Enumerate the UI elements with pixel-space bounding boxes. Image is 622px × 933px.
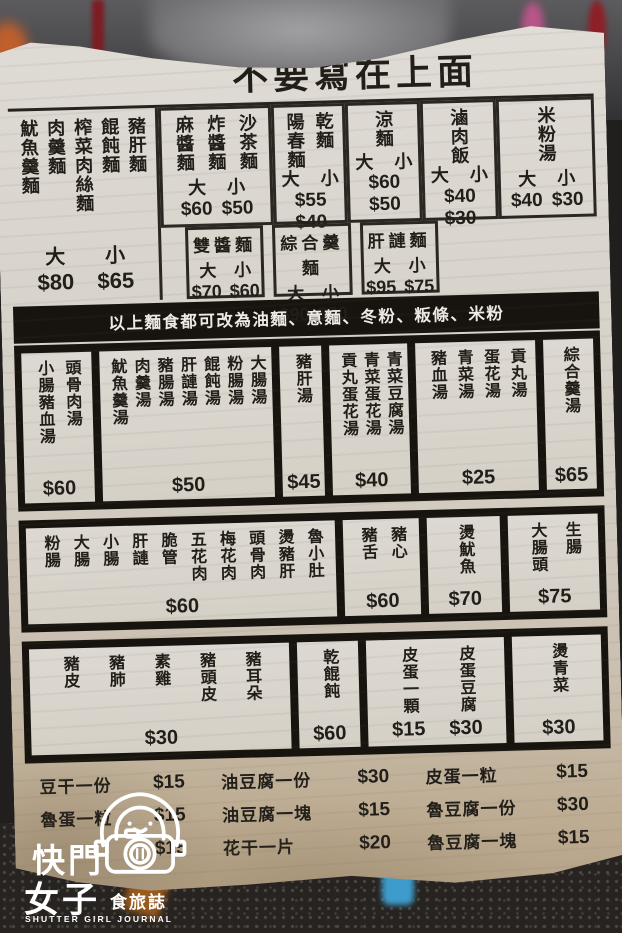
menu-item: 炸醬麵: [205, 114, 226, 178]
menu-item: 粉腸: [40, 535, 58, 599]
noodle-cell-mifen: 米粉湯 大 小 $40 $30: [496, 96, 597, 219]
cold-cell-3: 皮蛋一顆 $15 皮蛋豆腐 $30: [366, 637, 507, 747]
menu-item: 燙魷魚: [455, 524, 473, 588]
price-value: $75: [510, 584, 601, 611]
price-value-large: $80: [37, 269, 74, 295]
noodle-grid: 麻醬麵炸醬麵沙茶麵 大 小 $60 $50 陽春麵乾麵 大 小 $55 $40 …: [158, 96, 599, 299]
menu-item: 青菜豆腐湯: [383, 351, 403, 469]
watermark-line3: 食旅誌: [110, 888, 167, 913]
menu-item: 燙青菜: [548, 642, 567, 716]
price-value: $45: [283, 471, 325, 497]
menu-item: 肝謰: [128, 532, 146, 596]
menu-item: 花干一片: [223, 831, 360, 860]
size-labels: 大 小: [163, 176, 271, 199]
menu-item: 豬皮: [60, 655, 79, 729]
size-labels: 大 小: [363, 251, 436, 278]
price-value: $60: [299, 722, 361, 749]
price-value: $70: [428, 587, 502, 614]
menu-item: 肝謰麵: [363, 226, 436, 253]
noodle-row-1: 麻醬麵炸醬麵沙茶麵 大 小 $60 $50 陽春麵乾麵 大 小 $55 $40 …: [158, 96, 597, 227]
menu-item: 梅花肉: [216, 530, 234, 594]
menu-item: 米粉湯: [535, 105, 556, 169]
cold-section: 豬皮豬肺素雞豬頭皮豬耳朵 $30 乾餛飩 $60 皮蛋一顆 $15 皮蛋豆腐 $…: [22, 626, 611, 763]
price-values: $70 $60: [189, 280, 262, 303]
menu-item: 生腸: [562, 521, 580, 585]
price-values: $60 $50: [163, 197, 271, 225]
size-labels: 大 小: [276, 168, 345, 190]
price-value: $60: [24, 477, 94, 504]
menu-item: 大腸湯: [246, 354, 266, 472]
menu-item: 餛飩湯: [200, 355, 220, 473]
menu-item: 頭骨肉: [245, 529, 263, 593]
price-value: $30: [557, 793, 609, 816]
menu-item: 皮蛋一粒: [425, 760, 556, 788]
price-value: $40: [332, 468, 411, 495]
menu-item: 大腸: [70, 534, 88, 598]
menu-item: 大腸頭: [527, 522, 545, 586]
soup-section: 小腸豬血湯頭骨肉湯 $60 魷魚羹湯肉羹湯豬腸湯肝謰湯餛飩湯粉腸湯大腸湯 $50…: [14, 330, 604, 511]
menu-item: 脆管: [157, 532, 175, 596]
menu-item: 貢丸湯: [507, 347, 527, 465]
price-small: 小 $65: [96, 239, 134, 295]
noodle-cell-double-sauce: 雙醬麵 大 小 $70 $60: [185, 225, 265, 299]
price-value: $30: [514, 715, 603, 742]
menu-item: 涼麵: [373, 110, 393, 152]
noodle-main-items: 魷魚羹麵肉羹麵榨菜肉絲麵餛飩麵豬肝麵: [10, 116, 156, 242]
size-labels: 大 小: [189, 255, 262, 282]
menu-item: 貢丸蛋花湯: [337, 352, 357, 470]
price-value-small: $65: [97, 268, 134, 294]
menu-item: 豬肝麵: [126, 116, 148, 238]
menu-item: 燙豬肝: [274, 529, 292, 593]
menu-item: 皮蛋一顆: [398, 646, 417, 714]
soup-cell-1: 小腸豬血湯頭骨肉湯 $60: [21, 352, 95, 504]
cuts-cell-4: 大腸頭生腸 $75: [508, 513, 600, 611]
noodle-cell-rice: 滷肉飯 大 小 $40 $30: [419, 99, 498, 221]
price-large: 大 $80: [36, 240, 74, 296]
size-labels: 大 小: [424, 164, 495, 187]
menu-item: 魷魚羹麵: [18, 119, 40, 241]
price-value: $25: [418, 465, 538, 493]
menu-item: 頭骨肉湯: [62, 359, 82, 477]
menu-item: 魯豆腐一份: [426, 793, 557, 821]
price-values: $40 $30: [501, 189, 594, 216]
menu-item: 油豆腐一份: [221, 765, 358, 794]
menu-item: 豬血湯: [427, 349, 447, 467]
price-value: $60: [345, 589, 422, 616]
menu-item: 豬心: [387, 526, 405, 590]
noodle-cell-plain: 陽春麵乾麵 大 小 $55 $40: [271, 103, 348, 225]
menu-item: 滷肉飯: [448, 108, 468, 165]
price-values: $60 $50: [350, 171, 419, 219]
soup-cell-2: 魷魚羹湯肉羹湯豬腸湯肝謰湯餛飩湯粉腸湯大腸湯 $50: [99, 347, 276, 501]
menu-item: 青菜蛋花湯: [360, 351, 380, 469]
menu-paper: 不要寫在上面 魷魚羹麵肉羹麵榨菜肉絲麵餛飩麵豬肝麵 大 $80 小 $65: [0, 18, 622, 896]
menu-item: 肝謰湯: [177, 356, 197, 474]
price-value: $15: [558, 826, 610, 849]
cuts-cell-2: 豬舌豬心 $60: [343, 518, 421, 616]
menu-item: 麻醬麵: [174, 115, 195, 179]
price-value: $20: [359, 831, 428, 855]
noodle-cell-sauce: 麻醬麵炸醬麵沙茶麵 大 小 $60 $50: [158, 105, 274, 228]
menu-item: 小腸: [99, 533, 117, 597]
price-value: $65: [546, 464, 597, 490]
menu-item: 五花肉: [187, 531, 205, 595]
noodle-cell-liver: 肝謰麵 大 小 $95 $75: [359, 221, 439, 295]
menu-item: 綜合羹湯: [560, 346, 580, 464]
noodle-cell-main: 魷魚羹麵肉羹麵榨菜肉絲麵餛飩麵豬肝麵 大 $80 小 $65: [8, 108, 163, 304]
soup-cell-4: 貢丸蛋花湯青菜蛋花湯青菜豆腐湯 $40: [329, 343, 411, 495]
menu-item: 陽春麵: [284, 112, 304, 169]
menu-item: 粉腸湯: [223, 355, 243, 473]
menu-item: 乾餛飩: [319, 648, 338, 722]
menu-item: 肉羹麵: [45, 118, 67, 240]
price-value: $30: [357, 765, 426, 789]
noodle-row-2: 雙醬麵 大 小 $70 $60 綜合羹麵 大 小 $90 $80 肝謰麵 大 小…: [161, 216, 599, 299]
menu-item: 豬肝湯: [292, 353, 312, 471]
noodle-cell-combo-geng: 綜合羹麵 大 小 $90 $80: [272, 223, 352, 297]
menu-item: 豬腸湯: [154, 357, 174, 475]
dual-item-cell: 皮蛋一顆 $15 皮蛋豆腐 $30: [366, 637, 507, 747]
watermark-logo: 快門 女子 食旅誌 SHUTTER GIRL JOURNAL: [12, 786, 217, 931]
dual-left: 皮蛋一顆 $15: [390, 639, 426, 746]
cuts-section: 粉腸大腸小腸肝謰脆管五花肉梅花肉頭骨肉燙豬肝魯小肚 $60 豬舌豬心 $60 燙…: [19, 505, 608, 632]
price-value: $15: [392, 718, 426, 744]
menu-item: 皮蛋豆腐: [455, 645, 474, 713]
menu-item: 蛋花湯: [480, 348, 500, 466]
size-label-large: 大: [36, 240, 73, 270]
soup-cell-3: 豬肝湯 $45: [279, 346, 325, 497]
menu-item: 乾麵: [313, 111, 333, 168]
menu-item: 油豆腐一塊: [222, 798, 359, 827]
menu-item: 豬舌: [358, 526, 376, 590]
menu-item: 綜合羹麵: [275, 228, 349, 280]
noodle-section: 魷魚羹麵肉羹麵榨菜肉絲麵餛飩麵豬肝麵 大 $80 小 $65 麻醬麵炸醬麵沙茶麵: [8, 96, 599, 303]
noodle-main-prices: 大 $80 小 $65: [13, 238, 157, 299]
price-value: $15: [556, 760, 608, 783]
menu-photo: 不要寫在上面 魷魚羹麵肉羹麵榨菜肉絲麵餛飩麵豬肝麵 大 $80 小 $65: [0, 0, 622, 933]
menu-item: 素雞: [151, 653, 170, 727]
menu-item: 小腸豬血湯: [34, 360, 54, 478]
menu-item: 榨菜肉絲麵: [72, 118, 94, 240]
noodle-cell-cold: 涼麵 大 小 $60 $50: [345, 101, 422, 223]
menu-item: 沙茶麵: [237, 113, 258, 177]
price-value: $50: [102, 472, 275, 502]
menu-item: 魯小肚: [304, 528, 322, 592]
soup-cell-5: 豬血湯青菜湯蛋花湯貢丸湯 $25: [415, 340, 539, 493]
cuts-cell-3: 燙魷魚 $70: [427, 516, 503, 614]
menu-item: 餛飩麵: [99, 117, 121, 239]
background-blur-red-strip: [92, 0, 104, 55]
soup-cell-6: 綜合羹湯 $65: [543, 339, 597, 490]
menu-item: 豬耳朵: [242, 650, 261, 724]
menu-item: 肉羹湯: [131, 357, 151, 475]
menu-item: 豬頭皮: [196, 652, 215, 726]
cold-cell-2: 乾餛飩 $60: [297, 641, 361, 749]
cold-cell-4: 燙青菜 $30: [512, 634, 603, 742]
price-value: $30: [449, 717, 483, 743]
dual-right: 皮蛋豆腐 $30: [447, 638, 483, 745]
size-labels: 大 小: [500, 168, 593, 191]
menu-item: 豬肺: [105, 654, 124, 728]
size-label-small: 小: [96, 239, 133, 269]
menu-item: 雙醬麵: [188, 230, 261, 257]
cuts-cell-1: 粉腸大腸小腸肝謰脆管五花肉梅花肉頭骨肉燙豬肝魯小肚 $60: [26, 520, 338, 624]
price-values: $95 $75: [364, 276, 437, 299]
menu-item: 魷魚羹湯: [107, 358, 127, 476]
menu-item: 魯豆腐一塊: [427, 826, 558, 854]
menu-item: 青菜湯: [454, 349, 474, 467]
size-labels: 大 小: [277, 278, 350, 305]
size-labels: 大 小: [350, 151, 419, 173]
price-value: $15: [358, 798, 427, 822]
watermark-line4: SHUTTER GIRL JOURNAL: [25, 914, 173, 924]
cold-cell-1: 豬皮豬肺素雞豬頭皮豬耳朵 $30: [29, 643, 292, 756]
